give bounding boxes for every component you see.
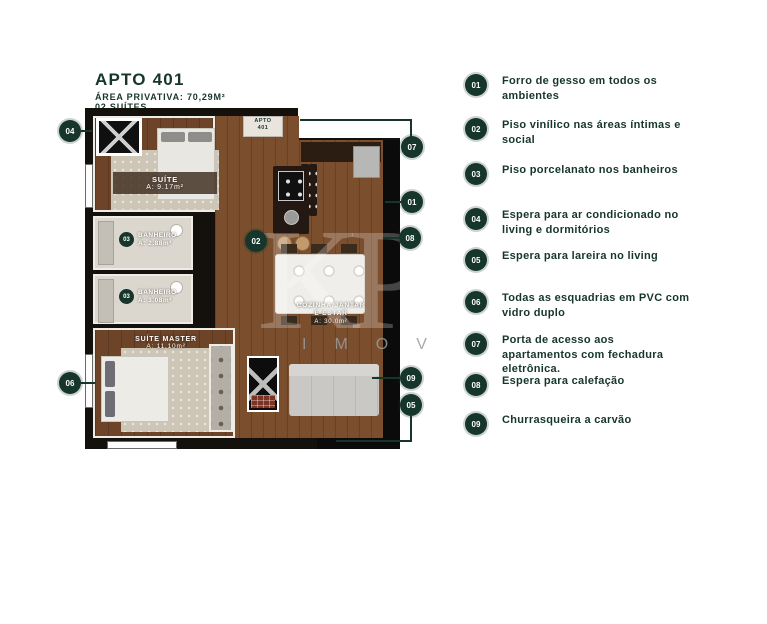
marker-05-line (336, 440, 412, 442)
legend-badge-01: 01 (465, 74, 487, 96)
legend-text-09: Churrasqueira a carvão (502, 413, 690, 428)
legend-text-04: Espera para ar condicionado no living e … (502, 208, 690, 237)
suite-master-bed (101, 356, 169, 422)
legend-item: 03 Piso porcelanato nos banheiros (465, 163, 725, 185)
plan-top-right-notch (298, 108, 400, 138)
marker-04-badge: 04 (59, 120, 81, 142)
apartment-title: APTO 401 (95, 70, 226, 90)
shower (98, 221, 114, 265)
fridge (353, 146, 380, 178)
suite-area: A: 9.17m² (113, 184, 217, 191)
legend-badge-09: 09 (465, 413, 487, 435)
legend-badge-06: 06 (465, 291, 487, 313)
marker-04-line (81, 130, 92, 132)
suite-master-area: A: 11.10m² (105, 343, 227, 350)
entry-label-line2: 401 (243, 125, 283, 132)
legend-item: 07 Porta de acesso aos apartamentos com … (465, 333, 725, 377)
grill-bricks (251, 395, 275, 408)
shower (98, 279, 114, 323)
charcoal-grill (247, 356, 279, 412)
watermark-letters: IMOV (302, 336, 455, 354)
legend-badge-07: 07 (465, 333, 487, 355)
suite-label: SUÍTE A: 9.17m² (113, 172, 217, 194)
bed-pillow (105, 361, 115, 387)
room-bathroom-2: 03 BANHEIRO A: 3.08m² (93, 274, 193, 324)
watermark-monogram: KP (257, 208, 400, 353)
title-block: APTO 401 ÁREA PRIVATIVA: 70,29M² 02 SUÍT… (95, 70, 226, 112)
window (85, 354, 93, 408)
legend-item: 08 Espera para calefação (465, 374, 725, 396)
legend-text-07: Porta de acesso aos apartamentos com fec… (502, 333, 690, 377)
elevator-shaft-icon (96, 118, 142, 156)
window (107, 441, 177, 449)
marker-07-line (300, 119, 412, 121)
legend-item: 09 Churrasqueira a carvão (465, 413, 725, 435)
bathroom2-name: BANHEIRO (138, 289, 177, 297)
legend-item: 04 Espera para ar condicionado no living… (465, 208, 725, 237)
marker-03-badge: 03 (119, 232, 134, 247)
legend-badge-04: 04 (465, 208, 487, 230)
marker-08-line (383, 237, 399, 239)
wardrobe (209, 344, 233, 432)
legend-badge-02: 02 (465, 118, 487, 140)
bathroom1-name: BANHEIRO (138, 232, 177, 240)
legend-text-03: Piso porcelanato nos banheiros (502, 163, 690, 178)
legend-text-08: Espera para calefação (502, 374, 690, 389)
bathroom2-area: A: 3.08m² (138, 297, 177, 305)
legend-text-05: Espera para lareira no living (502, 249, 690, 264)
marker-05-badge: 05 (400, 394, 422, 416)
marker-07-badge: 07 (401, 136, 423, 158)
legend-text-06: Todas as esquadrias em PVC com vidro dup… (502, 291, 690, 320)
marker-08-badge: 08 (399, 227, 421, 249)
legend-text-01: Forro de gesso em todos os ambientes (502, 74, 690, 103)
sofa-back (289, 364, 379, 376)
marker-05-line (410, 416, 412, 442)
marker-03-badge: 03 (119, 289, 134, 304)
marker-07-line (410, 119, 412, 137)
suite-name: SUÍTE (113, 175, 217, 184)
marker-01-badge: 01 (401, 191, 423, 213)
room-suite-master: SUÍTE MASTER A: 11.10m² (93, 328, 235, 438)
marker-01-line (385, 201, 401, 203)
marker-09-line (372, 377, 400, 379)
legend-item: 05 Espera para lareira no living (465, 249, 725, 271)
suite-master-name: SUÍTE MASTER (105, 336, 227, 343)
private-area-subtitle: ÁREA PRIVATIVA: 70,29M² (95, 92, 226, 102)
legend-text-02: Piso vinílico nas áreas íntimas e social (502, 118, 690, 147)
legend-badge-08: 08 (465, 374, 487, 396)
window (85, 164, 93, 208)
suite-master-label: SUÍTE MASTER A: 11.10m² (105, 336, 227, 350)
sofa (289, 364, 379, 416)
legend-badge-03: 03 (465, 163, 487, 185)
marker-09-badge: 09 (400, 367, 422, 389)
bed-pillow (188, 132, 212, 142)
marker-06-line (81, 382, 95, 384)
marker-02-badge: 02 (245, 230, 267, 252)
room-bathroom-1: 03 BANHEIRO A: 2.88m² (93, 216, 193, 270)
floor-plan: SUÍTE A: 9.17m² 03 BANHEIRO A: 2.88m² 03… (85, 108, 400, 449)
legend-item: 06 Todas as esquadrias em PVC com vidro … (465, 291, 725, 320)
legend-badge-05: 05 (465, 249, 487, 271)
cooktop (278, 171, 304, 201)
entry-label: APTO 401 (243, 118, 283, 131)
marker-06-badge: 06 (59, 372, 81, 394)
bed-pillow (161, 132, 185, 142)
legend-item: 02 Piso vinílico nas áreas íntimas e soc… (465, 118, 725, 147)
bed-pillow (105, 391, 115, 417)
legend-item: 01 Forro de gesso em todos os ambientes (465, 74, 725, 103)
bathroom1-area: A: 2.88m² (138, 240, 177, 248)
